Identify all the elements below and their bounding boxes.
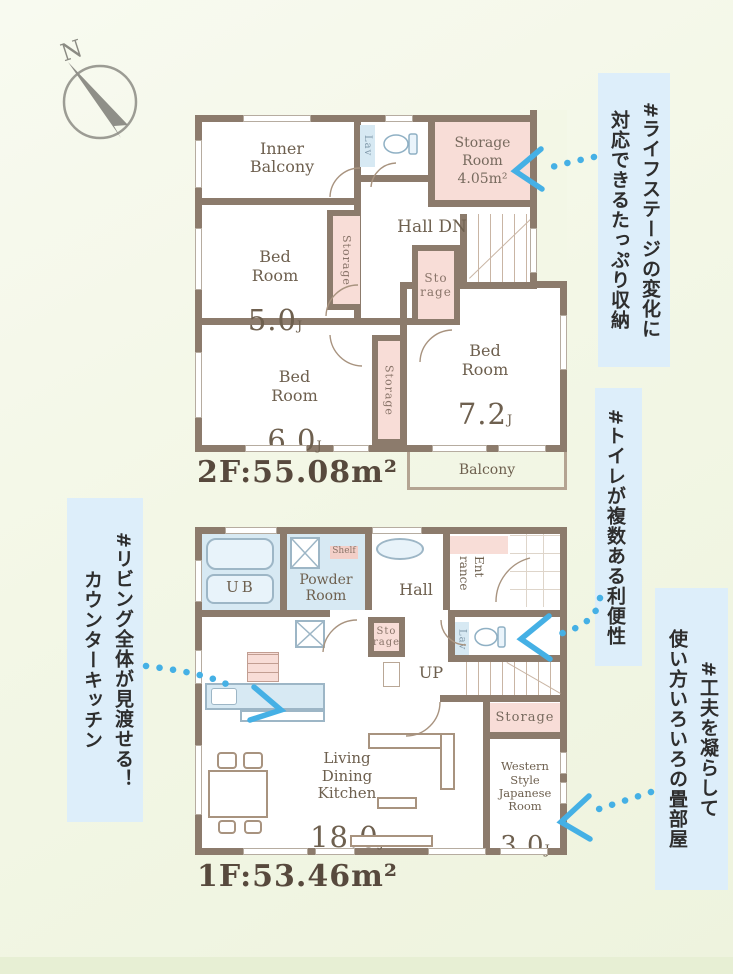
bottom-strip xyxy=(0,957,733,974)
floor-plan-flyer: N Inner Balcony Lav Storage Room 4.05m² … xyxy=(0,0,733,974)
arrow-dots xyxy=(146,157,651,811)
arrows-overlay xyxy=(0,0,733,974)
arrow-heads xyxy=(250,149,590,839)
